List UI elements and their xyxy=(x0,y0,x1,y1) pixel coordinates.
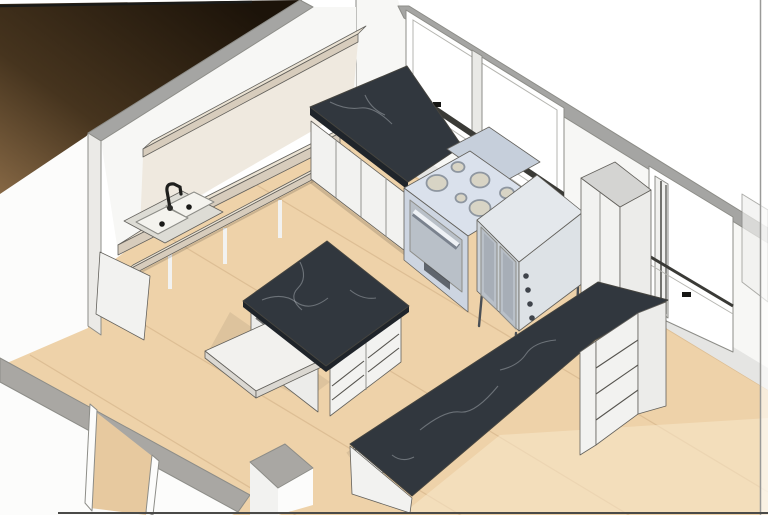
narrow-cabinet xyxy=(580,341,596,455)
burner xyxy=(427,175,448,191)
oven-knob xyxy=(523,273,529,279)
oven-knob xyxy=(529,315,535,321)
end-panel xyxy=(638,302,666,414)
shelf-support xyxy=(223,228,227,264)
oven-knob xyxy=(527,301,533,307)
shelf-support xyxy=(278,200,282,238)
sink-drain xyxy=(159,221,165,227)
sink-drain xyxy=(186,204,192,210)
burner xyxy=(471,173,490,188)
burner xyxy=(452,162,465,172)
oven-knob xyxy=(525,287,531,293)
right-fade xyxy=(761,0,768,515)
kitchen-3d-render xyxy=(0,0,768,515)
faucet-base xyxy=(167,205,173,211)
door-glass xyxy=(503,252,513,321)
door-glass xyxy=(484,233,494,302)
burner xyxy=(456,194,467,203)
window-latch xyxy=(682,292,691,297)
3d-viewport[interactable] xyxy=(0,0,768,515)
